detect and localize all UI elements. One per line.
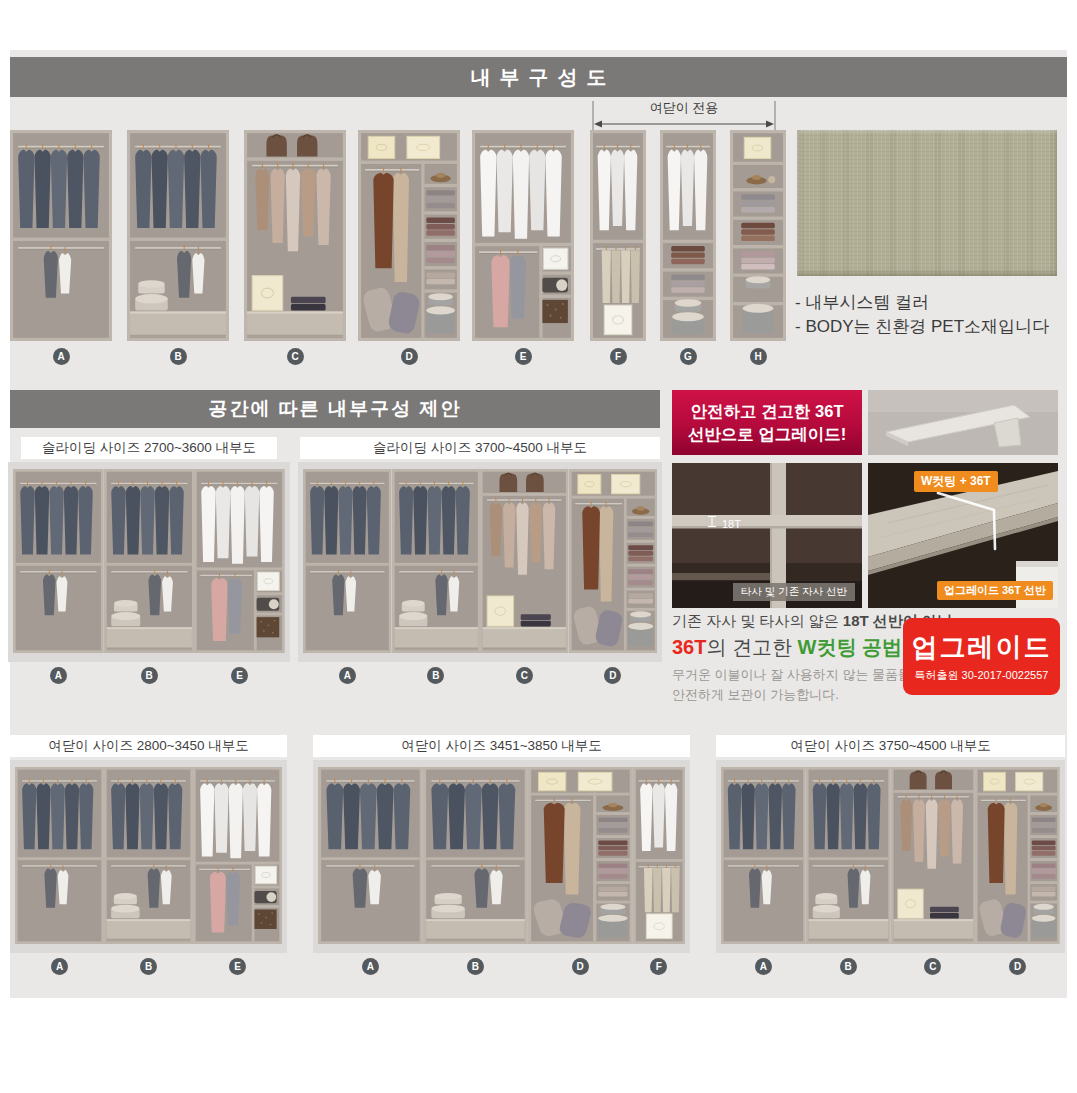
wardrobe-section-c xyxy=(891,767,976,944)
upgrade-badge-line2: 선반으로 업그레이드! xyxy=(688,423,847,445)
hinged-door-range-bracket: 여닫이 전용 xyxy=(592,98,776,132)
interior-color-swatch xyxy=(797,130,1057,276)
wardrobe-section-e xyxy=(193,767,282,944)
panel-bottom-left: 여닫이 사이즈 2800~3450 내부도ABE xyxy=(10,735,287,975)
section-letter-badge: B xyxy=(427,667,444,684)
section-letter-badge: B xyxy=(467,958,484,975)
swatch-notes: - 내부시스템 컬러 - BODY는 친환경 PET소재입니다 xyxy=(795,291,1049,339)
wardrobe-section-b xyxy=(806,767,891,944)
section-letter-badge: A xyxy=(51,958,68,975)
unit-letter-badge: C xyxy=(287,348,304,365)
section-letter-badge: D xyxy=(572,958,589,975)
section-letter-row: ABE xyxy=(10,958,287,975)
interior-color-note: - 내부시스템 컬러 xyxy=(795,291,1049,315)
patent-number: 특허출원 30-2017-0022557 xyxy=(915,668,1049,683)
wardrobe-photo xyxy=(8,462,290,662)
wardrobe-section-a xyxy=(13,469,104,653)
dim-18t-label: 18T xyxy=(722,518,741,530)
section-letter-row: ABCD xyxy=(716,958,1065,975)
section-letter-badge: A xyxy=(362,958,379,975)
section-letter-badge: B xyxy=(840,958,857,975)
unit-letter-badge: G xyxy=(680,348,697,365)
wardrobe-unit-e: E xyxy=(472,130,574,365)
section-letter-badge: E xyxy=(231,667,248,684)
unit-letter-badge: F xyxy=(610,348,627,365)
panel-title: 슬라이딩 사이즈 2700~3600 내부도 xyxy=(21,437,277,459)
unit-letter-badge: A xyxy=(53,348,70,365)
section-letter-badge: A xyxy=(50,667,67,684)
wardrobe-section-f xyxy=(633,767,685,944)
wardrobe-section-c xyxy=(480,469,569,653)
section-letter-badge: C xyxy=(924,958,941,975)
accent-36t: 36T xyxy=(672,636,706,658)
section-letter-badge: B xyxy=(140,958,157,975)
wardrobe-section-d xyxy=(975,767,1060,944)
wardrobe-unit-h: H xyxy=(730,130,786,365)
wcut-36t-tag: W컷팅 + 36T xyxy=(914,471,998,492)
wardrobe-photo xyxy=(298,462,662,662)
section-letter-badge: E xyxy=(229,958,246,975)
wardrobe-section-d xyxy=(569,469,658,653)
shelf-profile-photo xyxy=(868,390,1058,455)
main-section-header: 내부구성도 xyxy=(10,57,1067,97)
panel-title: 여닫이 사이즈 2800~3450 내부도 xyxy=(10,735,287,757)
wardrobe-photo xyxy=(313,760,690,953)
wardrobe-unit-f: F xyxy=(590,130,646,365)
wardrobe-unit-c: C xyxy=(244,130,346,365)
new-36t-shelf-photo: W컷팅 + 36T 업그레이드 36T 선반 xyxy=(868,463,1058,608)
wardrobe-section-a xyxy=(721,767,806,944)
panel-title: 슬라이딩 사이즈 3700~4500 내부도 xyxy=(300,437,660,459)
section-letter-badge: D xyxy=(1009,958,1026,975)
upgrade-36t-caption: 업그레이드 36T 선반 xyxy=(937,581,1053,600)
panel-mid-left: 슬라이딩 사이즈 2700~3600 내부도ABE xyxy=(8,437,290,684)
wardrobe-section-e xyxy=(194,469,285,653)
wardrobe-section-a xyxy=(303,469,392,653)
page: 내부구성도 여닫이 전용 ABCDEFGH - 내부시스템 컬러 - BODY는… xyxy=(0,0,1077,1093)
unit-letter-badge: E xyxy=(515,348,532,365)
panel-bottom-right: 여닫이 사이즈 3750~4500 내부도ABCD xyxy=(716,735,1065,975)
body-material-note: - BODY는 친환경 PET소재입니다 xyxy=(795,315,1049,339)
wardrobe-unit-g: G xyxy=(660,130,716,365)
upgrade-subdescription: 무거운 이불이나 잘 사용하지 않는 물품들도 안전하게 보관이 가능합니다. xyxy=(672,665,924,705)
wardrobe-unit-b: B xyxy=(127,130,229,365)
wardrobe-section-d xyxy=(528,767,633,944)
panel-mid-right: 슬라이딩 사이즈 3700~4500 내부도ABCD xyxy=(298,437,662,684)
section-letter-badge: D xyxy=(604,667,621,684)
page-title: 내부구성도 xyxy=(462,64,616,91)
section-letter-badge: B xyxy=(141,667,158,684)
wardrobe-section-b xyxy=(104,767,193,944)
wardrobe-unit-d: D xyxy=(358,130,460,365)
section-letter-badge: C xyxy=(516,667,533,684)
panel-bottom-mid: 여닫이 사이즈 3451~3850 내부도ABDF xyxy=(313,735,690,975)
bracket-label: 여닫이 전용 xyxy=(592,99,776,117)
upgrade-badge: 안전하고 견고한 36T 선반으로 업그레이드! xyxy=(672,390,862,455)
wardrobe-photo xyxy=(10,760,287,953)
section-letter-row: ABCD xyxy=(298,667,662,684)
accent-wcut: W컷팅 공법 xyxy=(798,636,902,658)
panel-title: 여닫이 사이즈 3451~3850 내부도 xyxy=(313,735,690,757)
patent-stamp-title: 업그레이드 xyxy=(912,630,1052,665)
section-header-space-proposal: 공간에 따른 내부구성 제안 xyxy=(10,390,660,428)
unit-letter-badge: B xyxy=(170,348,187,365)
panel-title: 여닫이 사이즈 3750~4500 내부도 xyxy=(716,735,1065,757)
wardrobe-section-b xyxy=(104,469,195,653)
wardrobe-section-b xyxy=(423,767,528,944)
section-letter-badge: A xyxy=(339,667,356,684)
wardrobe-unit-a: A xyxy=(10,130,112,365)
section-letter-badge: A xyxy=(755,958,772,975)
wardrobe-section-a xyxy=(15,767,104,944)
unit-letter-badge: D xyxy=(401,348,418,365)
old-shelf-caption: 타사 및 기존 자사 선반 xyxy=(733,583,855,601)
old-18t-shelf-photo: 18T 타사 및 기존 자사 선반 xyxy=(672,463,862,608)
section-letter-row: ABDF xyxy=(313,958,690,975)
section-letter-badge: F xyxy=(650,958,667,975)
patent-stamp: 업그레이드 특허출원 30-2017-0022557 xyxy=(903,618,1060,695)
wardrobe-photo xyxy=(716,760,1065,953)
wardrobe-section-b xyxy=(392,469,481,653)
upgrade-badge-line1: 안전하고 견고한 36T xyxy=(690,400,843,422)
section-letter-row: ABE xyxy=(8,667,290,684)
unit-letter-badge: H xyxy=(750,348,767,365)
wardrobe-section-a xyxy=(318,767,423,944)
